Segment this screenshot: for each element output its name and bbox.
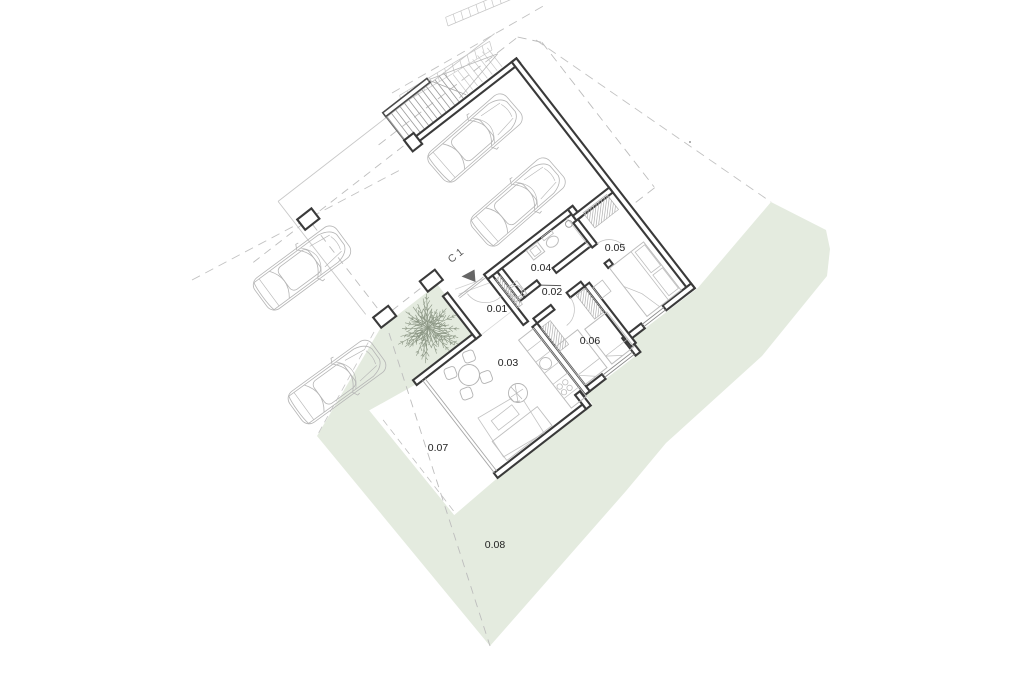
svg-text:0.01: 0.01 [487, 303, 508, 315]
svg-text:0.08: 0.08 [485, 539, 506, 551]
svg-text:0.02: 0.02 [542, 286, 563, 298]
svg-text:0.07: 0.07 [428, 442, 449, 454]
svg-text:0.05: 0.05 [605, 242, 626, 254]
svg-text:0.04: 0.04 [531, 262, 552, 274]
svg-text:0.06: 0.06 [580, 335, 601, 347]
svg-text:0.03: 0.03 [498, 357, 519, 369]
